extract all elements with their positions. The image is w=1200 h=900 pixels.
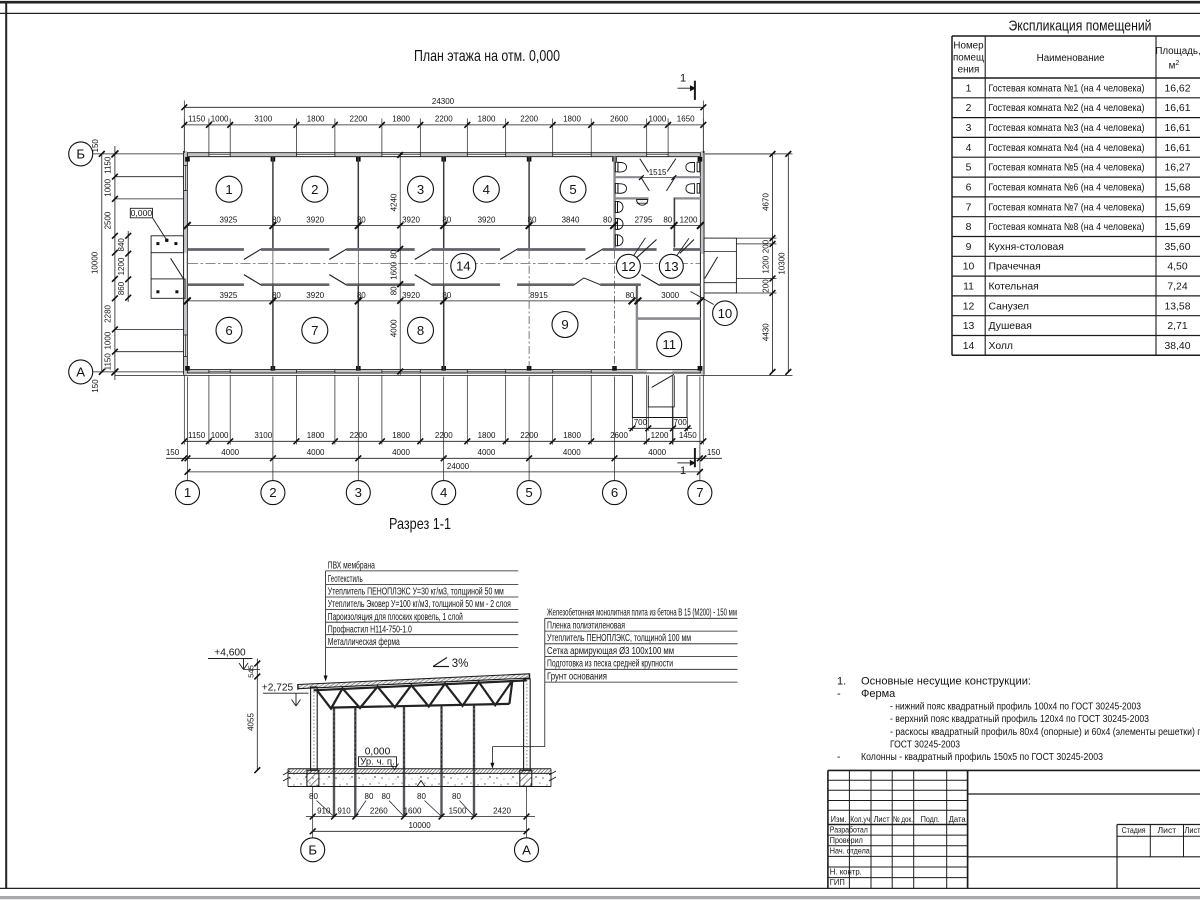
svg-text:910: 910 — [337, 806, 351, 815]
svg-text:1200: 1200 — [651, 431, 669, 440]
svg-text:5: 5 — [569, 182, 576, 197]
svg-text:1000: 1000 — [104, 331, 113, 349]
svg-text:7,24: 7,24 — [1167, 282, 1187, 293]
svg-text:80: 80 — [603, 216, 612, 225]
svg-text:200: 200 — [762, 239, 771, 253]
svg-text:Основные несущие конструкции:: Основные несущие конструкции: — [861, 675, 1031, 687]
svg-text:Душевая: Душевая — [989, 321, 1032, 332]
svg-text:10: 10 — [963, 262, 975, 273]
svg-text:Утеплитель ПЕНОПЛЭКС, толщиной: Утеплитель ПЕНОПЛЭКС, толщиной 100 мм — [547, 633, 691, 644]
svg-text:Стадия: Стадия — [1122, 825, 1146, 835]
svg-text:3920: 3920 — [402, 216, 420, 225]
svg-text:3: 3 — [966, 123, 972, 134]
svg-text:4000: 4000 — [392, 448, 410, 457]
svg-text:1150: 1150 — [104, 156, 113, 174]
svg-text:Геотекстиль: Геотекстиль — [328, 574, 363, 585]
svg-text:Площадь,: Площадь, — [1155, 46, 1200, 57]
svg-text:1: 1 — [184, 485, 191, 500]
svg-text:-: - — [837, 752, 840, 763]
svg-text:Лист: Лист — [1158, 825, 1177, 835]
svg-text:3: 3 — [355, 485, 362, 500]
svg-text:1200: 1200 — [117, 257, 126, 275]
svg-text:3920: 3920 — [402, 291, 420, 300]
svg-text:1000: 1000 — [649, 115, 667, 124]
svg-text:Проверил: Проверил — [830, 835, 863, 845]
svg-text:Гостевая комната №2 (на 4 чело: Гостевая комната №2 (на 4 человека) — [989, 103, 1145, 114]
svg-text:2500: 2500 — [104, 211, 113, 229]
svg-text:2: 2 — [311, 182, 318, 197]
svg-text:1515: 1515 — [649, 168, 667, 177]
svg-text:3925: 3925 — [220, 216, 238, 225]
svg-text:9: 9 — [561, 317, 568, 332]
svg-text:840: 840 — [117, 238, 126, 252]
svg-text:3925: 3925 — [220, 291, 238, 300]
svg-text:15,69: 15,69 — [1164, 202, 1190, 213]
svg-text:1000: 1000 — [211, 431, 229, 440]
svg-text:1800: 1800 — [563, 115, 581, 124]
svg-text:Гостевая комната №5 (на 4 чело: Гостевая комната №5 (на 4 человека) — [989, 163, 1145, 174]
svg-text:4: 4 — [483, 182, 490, 197]
svg-text:-: - — [837, 688, 841, 700]
svg-text:4055: 4055 — [246, 713, 255, 731]
svg-text:13: 13 — [963, 321, 975, 332]
svg-text:№ док.: № док. — [893, 814, 913, 824]
svg-text:- раскосы квадратный профиль 8: - раскосы квадратный профиль 80х4 (опорн… — [890, 726, 1200, 738]
svg-text:Утеплитель Эковер У=100 кг/м3,: Утеплитель Эковер У=100 кг/м3, толщиной … — [328, 599, 511, 610]
svg-text:80: 80 — [389, 249, 398, 258]
svg-text:Подп.: Подп. — [921, 814, 940, 824]
svg-text:1800: 1800 — [563, 431, 581, 440]
svg-text:8: 8 — [417, 323, 424, 338]
svg-text:5: 5 — [525, 485, 532, 500]
svg-text:4000: 4000 — [563, 448, 581, 457]
svg-text:80: 80 — [625, 291, 634, 300]
svg-text:1000: 1000 — [104, 178, 113, 196]
svg-text:8915: 8915 — [530, 291, 548, 300]
svg-text:8: 8 — [966, 222, 972, 233]
svg-text:3100: 3100 — [254, 115, 272, 124]
svg-text:1200: 1200 — [762, 255, 771, 273]
svg-text:Изм.: Изм. — [831, 814, 847, 824]
svg-text:Б: Б — [76, 147, 85, 162]
svg-text:2: 2 — [966, 103, 972, 114]
svg-text:Пленка полиэтиленовая: Пленка полиэтиленовая — [547, 621, 625, 632]
svg-text:Профнастил Н114-750-1.0: Профнастил Н114-750-1.0 — [328, 624, 412, 635]
svg-text:14: 14 — [963, 341, 975, 352]
svg-text:38,40: 38,40 — [1164, 341, 1190, 352]
svg-text:ения: ения — [958, 65, 980, 76]
svg-text:24000: 24000 — [447, 462, 470, 471]
svg-text:ПВХ мембрана: ПВХ мембрана — [328, 561, 375, 572]
svg-text:3%: 3% — [452, 658, 469, 670]
svg-text:80: 80 — [442, 291, 451, 300]
svg-text:12: 12 — [621, 259, 636, 274]
svg-text:ГИП: ГИП — [830, 877, 845, 887]
svg-text:80: 80 — [382, 792, 391, 801]
svg-text:1: 1 — [680, 465, 686, 477]
svg-text:Прачечная: Прачечная — [989, 262, 1041, 273]
svg-text:4430: 4430 — [762, 323, 771, 341]
svg-text:1500: 1500 — [449, 806, 467, 815]
svg-text:3840: 3840 — [562, 216, 580, 225]
svg-text:Дата: Дата — [949, 814, 966, 824]
svg-text:16,61: 16,61 — [1164, 123, 1190, 134]
svg-text:3: 3 — [417, 182, 424, 197]
svg-text:545: 545 — [246, 665, 255, 678]
svg-text:80: 80 — [452, 792, 461, 801]
svg-text:2200: 2200 — [435, 115, 453, 124]
svg-text:15,68: 15,68 — [1164, 183, 1190, 194]
svg-text:Б: Б — [308, 842, 317, 857]
svg-text:16,62: 16,62 — [1164, 83, 1190, 94]
svg-text:10: 10 — [718, 306, 733, 321]
svg-text:1200: 1200 — [680, 216, 698, 225]
svg-text:1800: 1800 — [478, 431, 496, 440]
svg-text:10000: 10000 — [91, 251, 100, 274]
svg-text:11: 11 — [662, 337, 676, 352]
svg-text:Санузел: Санузел — [989, 301, 1029, 312]
svg-text:80: 80 — [357, 291, 366, 300]
svg-text:1800: 1800 — [392, 431, 410, 440]
svg-text:3000: 3000 — [661, 291, 679, 300]
svg-text:- верхний пояс квадратный проф: - верхний пояс квадратный профиль 120х4 … — [890, 713, 1149, 725]
svg-text:16,61: 16,61 — [1164, 143, 1190, 154]
svg-text:1800: 1800 — [392, 115, 410, 124]
svg-text:1800: 1800 — [307, 115, 325, 124]
svg-text:16,27: 16,27 — [1164, 163, 1190, 174]
svg-text:1600: 1600 — [389, 261, 398, 279]
svg-text:11: 11 — [963, 282, 974, 293]
svg-text:2200: 2200 — [520, 115, 538, 124]
svg-text:4000: 4000 — [478, 448, 496, 457]
svg-text:80: 80 — [272, 216, 281, 225]
svg-text:Гостевая комната №1 (на 4 чело: Гостевая комната №1 (на 4 человека) — [989, 83, 1145, 94]
svg-text:1: 1 — [966, 83, 972, 94]
svg-text:0,000: 0,000 — [131, 208, 153, 218]
svg-text:7: 7 — [311, 323, 318, 338]
svg-text:4: 4 — [966, 143, 972, 154]
svg-text:860: 860 — [117, 281, 126, 295]
svg-text:Гостевая комната №8 (на 4 чело: Гостевая комната №8 (на 4 человека) — [989, 222, 1145, 233]
svg-text:10300: 10300 — [777, 252, 786, 275]
svg-text:2260: 2260 — [370, 806, 388, 815]
svg-text:150: 150 — [707, 448, 721, 457]
svg-text:- нижний пояс квадратный профи: - нижний пояс квадратный профиль 100х4 п… — [890, 701, 1141, 713]
svg-text:700: 700 — [674, 418, 688, 427]
svg-text:2420: 2420 — [493, 806, 511, 815]
svg-text:1.: 1. — [837, 675, 846, 687]
svg-text:Номер: Номер — [953, 41, 984, 52]
svg-text:13: 13 — [664, 259, 679, 274]
svg-text:80: 80 — [389, 286, 398, 295]
svg-text:6: 6 — [966, 183, 972, 194]
svg-text:1600: 1600 — [404, 806, 422, 815]
svg-text:1450: 1450 — [679, 431, 697, 440]
svg-text:1: 1 — [680, 73, 686, 85]
svg-text:1150: 1150 — [104, 353, 113, 371]
svg-text:Гостевая комната №3 (на 4 чело: Гостевая комната №3 (на 4 человека) — [989, 123, 1145, 134]
svg-text:Железобетонная монолитная плит: Железобетонная монолитная плита из бетон… — [547, 608, 737, 619]
svg-text:4000: 4000 — [389, 319, 398, 337]
svg-text:4,50: 4,50 — [1167, 262, 1187, 273]
svg-text:1150: 1150 — [188, 431, 206, 440]
svg-text:7: 7 — [696, 485, 703, 500]
svg-text:80: 80 — [309, 792, 318, 801]
svg-text:2600: 2600 — [610, 431, 628, 440]
svg-text:2200: 2200 — [350, 115, 368, 124]
svg-text:2200: 2200 — [520, 431, 538, 440]
svg-text:80: 80 — [528, 216, 537, 225]
svg-text:4670: 4670 — [762, 193, 771, 211]
svg-text:Пароизоляция для плоских крове: Пароизоляция для плоских кровель, 1 слой — [328, 612, 463, 623]
svg-text:Нач. отдела: Нач. отдела — [830, 845, 870, 855]
svg-text:80: 80 — [417, 792, 426, 801]
svg-text:ГОСТ 30245-2003: ГОСТ 30245-2003 — [890, 739, 960, 750]
svg-text:2: 2 — [269, 485, 276, 500]
svg-text:13,58: 13,58 — [1164, 301, 1190, 312]
svg-text:Лист: Лист — [874, 814, 890, 824]
svg-text:150: 150 — [91, 379, 100, 393]
svg-text:Металлическая ферма: Металлическая ферма — [328, 637, 400, 648]
svg-text:9: 9 — [966, 242, 972, 253]
svg-text:5: 5 — [966, 163, 972, 174]
svg-text:Грунт основания: Грунт основания — [547, 672, 607, 683]
svg-text:3920: 3920 — [306, 291, 324, 300]
svg-text:7: 7 — [966, 202, 972, 213]
svg-text:1650: 1650 — [677, 115, 695, 124]
svg-text:Н. контр.: Н. контр. — [830, 867, 862, 877]
svg-text:помещ: помещ — [953, 53, 984, 64]
svg-text:4000: 4000 — [307, 448, 325, 457]
svg-text:+2,725: +2,725 — [262, 683, 294, 694]
svg-text:Ур. ч. п.: Ур. ч. п. — [360, 757, 395, 768]
svg-text:80: 80 — [272, 291, 281, 300]
svg-text:4240: 4240 — [389, 193, 398, 211]
svg-text:150: 150 — [166, 448, 180, 457]
svg-text:Разрез 1-1: Разрез 1-1 — [389, 516, 451, 533]
svg-text:Холл: Холл — [989, 341, 1014, 352]
svg-text:700: 700 — [634, 418, 648, 427]
svg-text:А: А — [522, 842, 531, 857]
svg-text:80: 80 — [663, 216, 672, 225]
svg-text:1: 1 — [225, 182, 232, 197]
svg-text:3920: 3920 — [306, 216, 324, 225]
svg-text:1150: 1150 — [188, 115, 206, 124]
svg-text:Кол.уч: Кол.уч — [850, 814, 870, 824]
svg-text:Утеплитель ПЕНОПЛЭКС У=30 кг/м: Утеплитель ПЕНОПЛЭКС У=30 кг/м3, толщино… — [328, 587, 504, 598]
svg-text:80: 80 — [357, 216, 366, 225]
svg-text:2200: 2200 — [435, 431, 453, 440]
svg-text:2280: 2280 — [104, 304, 113, 322]
svg-text:80: 80 — [365, 792, 374, 801]
svg-text:15,69: 15,69 — [1164, 222, 1190, 233]
svg-text:Подготовка из песка средней кр: Подготовка из песка средней крупности — [547, 659, 673, 670]
svg-text:Листов: Листов — [1185, 825, 1200, 835]
svg-text:4000: 4000 — [221, 448, 239, 457]
svg-text:Ферма: Ферма — [861, 688, 896, 700]
svg-text:1000: 1000 — [211, 115, 229, 124]
svg-text:12: 12 — [963, 301, 975, 312]
svg-text:Гостевая комната №4 (на 4 чело: Гостевая комната №4 (на 4 человека) — [989, 143, 1145, 154]
svg-text:План этажа на отм. 0,000: План этажа на отм. 0,000 — [414, 48, 560, 65]
svg-text:+4,600: +4,600 — [214, 648, 246, 659]
svg-text:6: 6 — [611, 485, 618, 500]
svg-text:35,60: 35,60 — [1164, 242, 1190, 253]
svg-text:Котельная: Котельная — [989, 282, 1039, 293]
svg-text:16,61: 16,61 — [1164, 103, 1190, 114]
svg-text:Экспликация помещений: Экспликация помещений — [1009, 18, 1152, 35]
svg-text:10000: 10000 — [408, 821, 431, 830]
svg-text:Колонны - квадратный профиль 1: Колонны - квадратный профиль 150х5 по ГО… — [861, 751, 1103, 763]
svg-text:2600: 2600 — [610, 115, 628, 124]
svg-text:1800: 1800 — [478, 115, 496, 124]
svg-text:А: А — [76, 365, 85, 380]
svg-text:14: 14 — [456, 259, 471, 274]
svg-text:24300: 24300 — [432, 97, 455, 106]
svg-text:Разработал: Разработал — [830, 825, 868, 835]
svg-text:1800: 1800 — [307, 431, 325, 440]
svg-text:Кухня-столовая: Кухня-столовая — [989, 242, 1064, 253]
svg-text:4000: 4000 — [648, 448, 666, 457]
svg-text:2795: 2795 — [635, 216, 653, 225]
svg-text:3920: 3920 — [478, 216, 496, 225]
svg-text:200: 200 — [762, 279, 771, 293]
svg-text:Гостевая комната №6 (на 4 чело: Гостевая комната №6 (на 4 человека) — [989, 183, 1145, 194]
svg-text:4: 4 — [440, 485, 447, 500]
svg-text:3100: 3100 — [254, 431, 272, 440]
svg-text:2,71: 2,71 — [1167, 321, 1187, 332]
svg-text:80: 80 — [442, 216, 451, 225]
svg-text:6: 6 — [225, 323, 232, 338]
svg-text:2200: 2200 — [350, 431, 368, 440]
svg-text:Гостевая комната №7 (на 4 чело: Гостевая комната №7 (на 4 человека) — [989, 202, 1145, 213]
svg-text:Наименование: Наименование — [1037, 53, 1105, 64]
svg-text:Сетка армирующая Ø3 100х100 мм: Сетка армирующая Ø3 100х100 мм — [547, 646, 674, 657]
